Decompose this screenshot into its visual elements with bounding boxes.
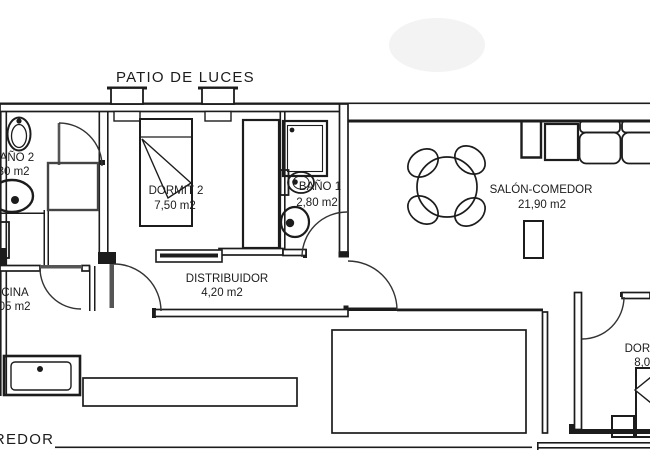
dormit1-area: 8,05 m2 (634, 357, 650, 369)
sink-icon (0, 180, 33, 212)
shower-drain-dot (290, 128, 295, 133)
divider-corner-block (98, 252, 116, 264)
window1 (111, 88, 143, 104)
corridor-right-stub (537, 442, 539, 450)
dormit1-top-wall (622, 293, 650, 299)
salon-duct (522, 121, 542, 158)
sink-drain-dot (11, 196, 19, 204)
bano2-south-line (0, 213, 44, 215)
side-table-icon (545, 124, 578, 160)
corridor-right-a (537, 442, 650, 444)
patio-label: PATIO DE LUCES (116, 69, 255, 86)
faucet-dot (37, 366, 43, 372)
salon-label: SALÓN-COMEDOR (490, 183, 593, 196)
distribuidor-area: 4,20 m2 (201, 287, 243, 299)
sliding-door-leaf (160, 254, 218, 258)
cocina-label: COCINA (0, 287, 29, 299)
dormit2-area: 7,50 m2 (154, 200, 196, 212)
dormit1-west-wall (575, 293, 582, 430)
distribuidor-south-wall (155, 310, 348, 317)
window1-sill (114, 112, 140, 122)
dormit1-door-arc (582, 297, 624, 339)
hollow-walls (0, 104, 650, 433)
salon-door-arc (348, 261, 397, 310)
corridor-right-b (537, 447, 650, 449)
lower-room-outline (332, 330, 526, 433)
sofa-seat-cushion (580, 133, 621, 164)
dormit2-south-wall (219, 249, 283, 256)
cocina-fixtures (4, 356, 80, 395)
sink-drain-dot (292, 179, 298, 185)
bano1-label: BAÑO 1 (299, 180, 341, 193)
bano1-fixtures (281, 121, 328, 237)
salon-area: 21,90 m2 (518, 199, 566, 211)
corridor-label: CORREDOR (0, 431, 54, 448)
wardrobe-icon (243, 120, 279, 248)
kitchen-step-block (83, 378, 297, 406)
distribuidor-label: DISTRIBUIDOR (186, 273, 268, 285)
window2 (202, 88, 234, 104)
toilet-flush-dot (16, 118, 21, 123)
corridor-line (55, 447, 532, 449)
bed-icon (636, 368, 650, 437)
cocina-top-stub (82, 266, 90, 272)
floor-plan: PATIO DE LUCES CORREDOR BAÑO 2 3,30 m2 D… (0, 0, 650, 450)
doors (40, 123, 624, 339)
hall-wall-b (48, 210, 50, 266)
bano2-area: 3,30 m2 (0, 166, 30, 178)
entry-door-leaf (110, 264, 115, 308)
dormit1-furniture (612, 368, 650, 437)
sofa-seat-cushion (622, 133, 650, 164)
bano1-area: 2,80 m2 (296, 197, 338, 209)
chair-icon (449, 140, 490, 180)
toilet-bowl-icon (12, 125, 27, 148)
hall-wall-a (44, 210, 46, 266)
duct-wall-west (543, 312, 548, 433)
salon-south-thin-wall (397, 309, 543, 312)
cocina-area: 7,05 m2 (0, 301, 31, 313)
cocina-east-a (89, 266, 91, 311)
radiator-icon (524, 221, 543, 258)
top-main-wall (0, 104, 340, 112)
dining-table-icon (417, 157, 477, 217)
dormit2-sliding-door (156, 250, 222, 262)
bed-fold-icon (635, 377, 650, 403)
dormit1-label: DORMIT 1 (625, 343, 650, 355)
cocina-door-arc (40, 268, 81, 309)
chair-icon (402, 143, 443, 183)
cocina-east-b (94, 266, 96, 311)
bano2-door-arc (59, 123, 102, 166)
window2-sill (205, 112, 231, 122)
watermark (389, 18, 485, 72)
cocina-top-wall (0, 266, 40, 272)
salon-west-wall (340, 104, 349, 252)
cocina-door-leaf (40, 265, 82, 269)
entry-door-arc (114, 264, 161, 311)
dormit2-furniture (140, 119, 279, 248)
chair-icon (402, 190, 443, 230)
divider-wall-b (107, 111, 109, 252)
bano2-label: BAÑO 2 (0, 151, 34, 164)
dormit2-label: DORMIT 2 (149, 185, 204, 197)
shower-tray-icon (288, 126, 323, 172)
shower-icon (48, 163, 98, 210)
chair-icon (449, 192, 490, 232)
toilet-drain-dot (286, 219, 294, 227)
shower-icon (283, 121, 327, 176)
salon-door-leaf (348, 308, 397, 312)
